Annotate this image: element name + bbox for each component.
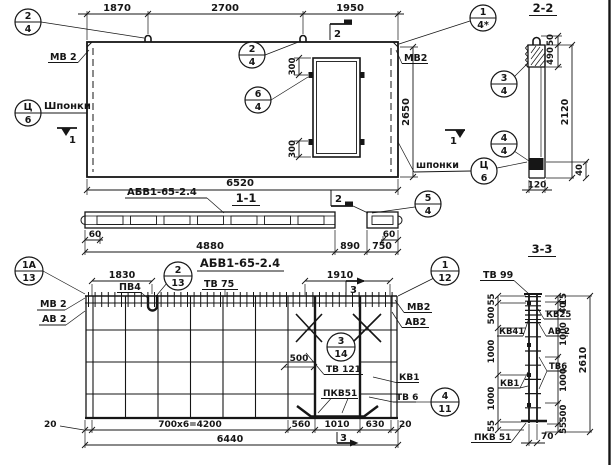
callout-sheet: 4: [501, 86, 508, 97]
label-mv2-right: МВ2: [396, 50, 428, 64]
label-shponki-left: Шпонки: [44, 101, 91, 112]
label-text: ТВ 75: [204, 279, 234, 290]
callout-door: 6 4: [245, 77, 308, 113]
dims-1-1: 60 60 4880 890 750: [82, 230, 401, 255]
label-text: ТВ 121: [326, 365, 361, 375]
callout-num: 3: [501, 73, 508, 84]
dim-1950: 1950: [336, 3, 364, 14]
marker-num: 3: [340, 433, 347, 444]
dim-60-left: 60: [89, 230, 102, 240]
door-dims: 300 300: [288, 55, 311, 160]
callout-4-11: 4 11: [431, 388, 459, 416]
dim-630: 630: [366, 420, 385, 430]
label-mv2-left: МВ 2: [48, 50, 89, 63]
callout-num: 2: [25, 11, 32, 22]
lifting-hook-icon: [533, 38, 540, 46]
section-marker-3-bottom: 3: [337, 432, 359, 447]
dim-300-bot: 300: [288, 140, 298, 158]
label-text: АВ 2: [548, 327, 570, 337]
label-pkv51-33: ПКВ 51: [471, 423, 526, 443]
callout-key-left: Ц 6 Шпонки: [15, 100, 91, 126]
section-2-2-title: 2-2: [533, 1, 554, 15]
label-text: ТВ 99: [483, 270, 513, 281]
section-marker-1-left: 1: [57, 128, 77, 146]
dim-55-bottom: 55: [487, 420, 497, 432]
label-text: АБВ1-65-2.4: [127, 187, 197, 198]
label-text: КВ25: [546, 310, 571, 320]
dim-2120: 2120: [560, 98, 571, 125]
callout-2-2-top: 3 4: [491, 63, 528, 97]
callout-sheet: 12: [438, 273, 451, 284]
marker-num: 3: [350, 285, 357, 296]
label-text: АВ 2: [42, 314, 67, 325]
callout-sheet: 13: [22, 273, 35, 284]
callout-num: 1А: [22, 260, 37, 271]
dim-70: 70: [521, 424, 554, 446]
label-shponki-right: шпонки: [416, 160, 459, 171]
dim-50: 50: [546, 34, 556, 46]
strip-3-3: [521, 294, 547, 423]
callout-sheet: 6: [25, 115, 32, 126]
label-mv2-left-rv: МВ 2: [37, 298, 85, 310]
marker-num: 1: [69, 135, 76, 146]
section-marker-1-right: 1: [445, 130, 465, 147]
strip-2-2: [526, 45, 546, 178]
label-text: ПКВ 51: [474, 433, 511, 443]
dim-6440: 6440: [217, 434, 244, 445]
drawing-sheet: 1870 2700 1950 2650 6520 300 300: [0, 0, 611, 465]
section-1-1: АБВ1-65-2.4 1-1 2: [81, 187, 441, 255]
dim-2610: 2610: [578, 346, 589, 373]
dim-2700: 2700: [211, 3, 239, 14]
callout-sheet: 4: [25, 24, 32, 35]
lifting-hook-icon: [145, 36, 151, 43]
dim-55-top: 55: [487, 294, 497, 306]
label-text: КВ41: [499, 327, 524, 337]
section-marker-2-bottom: 2: [331, 190, 368, 213]
label-av2-left-rv: АВ 2: [39, 311, 85, 325]
callout-sheet: 4: [249, 57, 256, 68]
dim-1000-left-2: 1000: [487, 387, 497, 411]
label-text: ПКВ51: [323, 389, 357, 399]
reinforcement-view: АБВ1-65-2.4 1А 13: [15, 256, 459, 448]
callout-sheet: 13: [171, 278, 184, 289]
callout-1-1: 5 4: [372, 191, 441, 217]
slab-section: [81, 212, 402, 228]
dim-text: 500: [290, 354, 309, 364]
label-text: МВ2: [404, 53, 427, 64]
label-kv25: КВ25: [538, 309, 571, 320]
label-text: МВ 2: [40, 299, 67, 310]
label-tv99: ТВ 99: [480, 270, 529, 294]
dims-3-3-left: 55 500 1000 1000 55: [487, 293, 526, 433]
dim-1000-left-1: 1000: [487, 340, 497, 364]
marker-num: 1: [450, 136, 457, 147]
callout-sheet: 6: [481, 173, 488, 184]
callout-num: 3: [338, 336, 345, 347]
section-2-2: 2-2 50 490 2120 40 120: [491, 1, 589, 193]
panel-elevation-view: 1870 2700 1950 2650 6520 300 300: [15, 3, 527, 195]
callout-sheet: 4*: [477, 20, 489, 31]
callout-num: Ц: [24, 102, 33, 113]
dim-1870: 1870: [103, 3, 131, 14]
dim-text: 1830: [109, 270, 136, 281]
dim-490: 490: [546, 47, 556, 65]
callout-num: 2: [249, 44, 256, 55]
label-kv1-rv: КВ1: [373, 373, 419, 383]
callout-1a: 1А 13: [15, 257, 85, 294]
dim-55-right: 55: [559, 422, 569, 434]
label-text: МВ 2: [50, 52, 77, 63]
dim-500-left: 500: [487, 307, 497, 325]
callout-num: 1: [442, 260, 449, 271]
dim-20-left: 20: [44, 420, 57, 430]
callout-num: 6: [255, 89, 262, 100]
dim-6520: 6520: [226, 178, 254, 189]
dim-40: 40: [575, 164, 585, 176]
dim-20-right: 20: [399, 420, 412, 430]
dim-750: 750: [372, 241, 392, 252]
callout-sheet: 4: [255, 102, 262, 113]
dim-4880: 4880: [196, 241, 224, 252]
label-text: КВ1: [399, 373, 419, 383]
label-mv2-right-rv: МВ2: [395, 300, 432, 313]
callout-num: Ц: [480, 160, 489, 171]
marker-num: 2: [335, 194, 342, 205]
callout-sheet: 11: [438, 404, 451, 415]
dim-120: 120: [528, 181, 547, 191]
dim-500-right: 500: [559, 405, 569, 423]
callout-1-12: 1 12: [398, 257, 459, 296]
dim-560: 560: [292, 420, 311, 430]
callout-sheet: 4: [501, 146, 508, 157]
callout-sheet: 4: [425, 206, 432, 217]
pkv51-bent-bar: [297, 406, 378, 417]
label-text: АВ2: [405, 317, 426, 328]
label-text: ТВ 6: [396, 393, 418, 403]
dim-2650: 2650: [401, 98, 412, 126]
label-pkv51-rv: ПКВ51: [318, 389, 358, 413]
dim-300-top: 300: [288, 58, 298, 76]
panel-top-dims: 1870 2700 1950: [78, 3, 404, 40]
dim-890: 890: [340, 241, 360, 252]
label-text: ПВ4: [119, 282, 141, 293]
section-marker-2-top: 2: [330, 20, 352, 41]
door-opening: [309, 58, 365, 157]
dim-text: 70: [541, 432, 554, 442]
callout-corner: 1 4*: [399, 5, 496, 44]
callout-2-13: 2 13: [157, 262, 192, 295]
label-kv1-33: КВ1: [498, 372, 528, 389]
callout-num: 5: [425, 193, 432, 204]
section-3-3-title: 3-3: [532, 242, 553, 256]
section-1-1-title: 1-1: [236, 191, 257, 205]
section-3-3: 3-3 ТВ 99 55 500 1000 1000 55: [471, 242, 593, 446]
callout-num: 4: [501, 133, 508, 144]
callout-2-2-bottom: 4 4: [491, 131, 529, 161]
dim-4200: 700x6=4200: [158, 420, 221, 430]
reinf-title: АБВ1-65-2.4: [200, 256, 280, 270]
callout-3-14: 3 14: [327, 333, 355, 361]
dim-1910: 1910: [302, 270, 393, 295]
callout-sheet: 14: [334, 349, 348, 360]
marker-num: 2: [334, 29, 341, 40]
callout-num: 1: [480, 7, 487, 18]
label-text: ТВ6: [549, 362, 567, 372]
callout-num: 2: [175, 265, 182, 276]
dim-text: 1910: [327, 270, 354, 281]
label-text: КВ1: [500, 379, 519, 389]
section-marker-3-top: 3: [346, 278, 366, 297]
dim-60-right: 60: [383, 230, 396, 240]
dim-1010: 1010: [324, 420, 349, 430]
label-kv41: КВ41: [497, 318, 529, 337]
label-text: МВ2: [407, 302, 430, 313]
mark-label-1-1: АБВ1-65-2.4: [125, 187, 224, 213]
callout-num: 4: [442, 391, 449, 402]
